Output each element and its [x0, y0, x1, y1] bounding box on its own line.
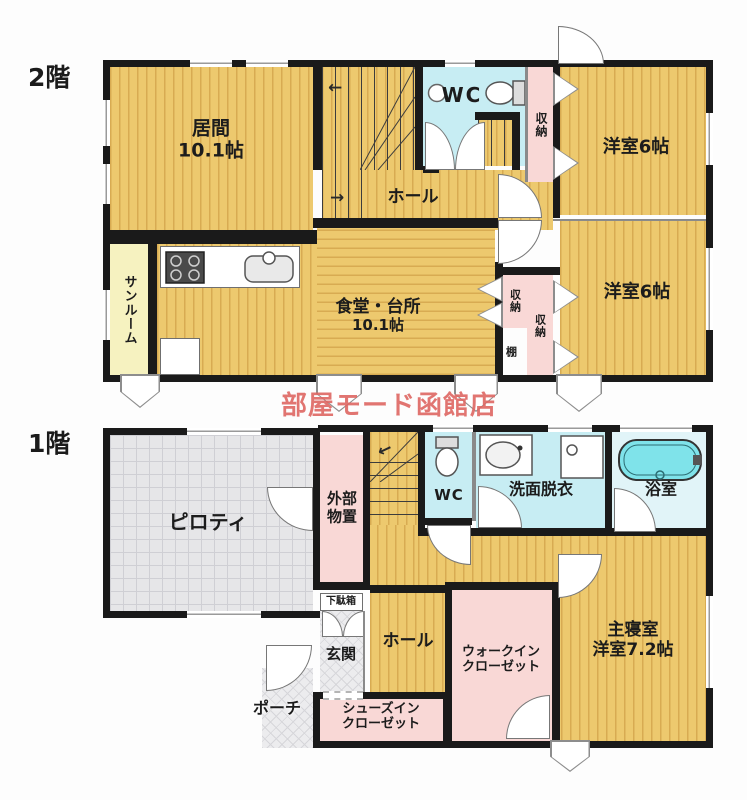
- partition: [472, 432, 476, 521]
- label-shoe-cabinet-1f: 下駄箱: [326, 596, 356, 608]
- wall: [495, 267, 560, 275]
- window: [103, 164, 110, 204]
- window: [445, 60, 475, 67]
- window: [190, 60, 232, 67]
- washing-machine-icon: [560, 435, 604, 479]
- stove-icon: [165, 251, 205, 284]
- label-yoshitsu-top-2f: 洋室6帖: [603, 136, 670, 157]
- window: [706, 596, 713, 688]
- washbasin-icon: [479, 434, 533, 476]
- label-sunroom-2f: サンルーム: [123, 275, 136, 345]
- wall: [605, 428, 612, 535]
- label-shelf-2f: 棚: [506, 346, 517, 358]
- wall: [103, 428, 110, 618]
- partition: [363, 611, 365, 692]
- wall: [103, 375, 713, 382]
- dashed-opening: [323, 691, 363, 700]
- floor-label-2f: 2階: [28, 58, 70, 94]
- label-closet-b-2f: 収納: [535, 314, 546, 338]
- window: [620, 425, 692, 432]
- wall: [415, 67, 423, 170]
- corridor-1f: [368, 525, 418, 587]
- partition: [553, 219, 706, 221]
- wall: [313, 67, 322, 170]
- wall: [552, 590, 560, 748]
- toilet-icon-1f: [432, 436, 462, 478]
- label-porch-1f: ポーチ: [253, 700, 301, 719]
- wall: [313, 428, 320, 590]
- wall: [445, 582, 559, 590]
- wall: [148, 244, 157, 375]
- label-yoshitsu-bottom-2f: 洋室6帖: [604, 281, 671, 302]
- wall: [425, 518, 472, 525]
- wall: [110, 230, 317, 244]
- stairs-2f-arrow-icon: ←: [328, 80, 342, 97]
- wall: [370, 585, 448, 593]
- stairs-2f-winder-icon: [360, 67, 415, 170]
- watermark: 部屋モード函館店: [281, 385, 497, 422]
- door-arc: [498, 220, 542, 264]
- wall: [706, 425, 713, 748]
- bay-opening-icon: [550, 740, 590, 772]
- wall: [313, 218, 498, 228]
- label-closet-top-2f: 収納: [535, 112, 547, 138]
- wall: [512, 120, 520, 170]
- label-dining-2f: 食堂・台所10.1帖: [336, 297, 421, 335]
- wall: [313, 741, 713, 748]
- floor-label-1f: 1階: [28, 424, 70, 460]
- stairs-2f-lower-arrow-icon: →: [330, 190, 344, 207]
- wall: [418, 432, 425, 528]
- label-wic-1f: ウォークインクローゼット: [462, 645, 540, 676]
- window: [103, 290, 110, 340]
- window: [548, 425, 592, 432]
- window: [103, 100, 110, 146]
- bathtub-icon: [617, 437, 703, 483]
- wall: [313, 692, 320, 748]
- window: [246, 60, 288, 67]
- wall: [706, 60, 713, 382]
- wall: [363, 428, 370, 588]
- label-hall-1f: ホール: [383, 631, 434, 651]
- window: [187, 428, 261, 435]
- wall: [313, 582, 370, 590]
- wall: [443, 692, 452, 748]
- kitchen-appliance-box: [160, 338, 200, 375]
- floor-plan-image: 2階 ← →: [0, 0, 747, 800]
- label-piloti-1f: ピロティ: [169, 511, 248, 535]
- label-wc-1f: WC: [434, 487, 464, 505]
- partition: [525, 67, 528, 182]
- label-sic-1f: シューズインクローゼット: [342, 702, 420, 733]
- bay-opening-icon: [120, 374, 160, 408]
- stairs-1f-winder-icon: [370, 432, 418, 482]
- label-living-2f: 居間10.1帖: [178, 118, 244, 163]
- toilet-icon-2f: [485, 77, 527, 109]
- window: [706, 248, 713, 330]
- label-bath-1f: 浴室: [645, 481, 677, 500]
- kitchen-sink-icon: [243, 250, 295, 285]
- label-wc-2f: WC: [442, 84, 483, 108]
- label-closet-a-2f: 収納: [510, 289, 521, 313]
- wall: [475, 112, 520, 120]
- label-master-1f: 主寝室洋室7.2帖: [592, 620, 673, 660]
- bay-opening-icon: [556, 374, 602, 412]
- window: [706, 113, 713, 165]
- label-hall-2f: ホール: [388, 187, 439, 207]
- window: [187, 611, 261, 618]
- label-entrance-1f: 玄関: [326, 646, 356, 664]
- label-washroom-1f: 洗面脱衣: [509, 481, 573, 500]
- door-arc-exterior: [558, 26, 604, 64]
- window: [433, 425, 473, 432]
- label-ext-storage-1f: 外部物置: [327, 490, 357, 525]
